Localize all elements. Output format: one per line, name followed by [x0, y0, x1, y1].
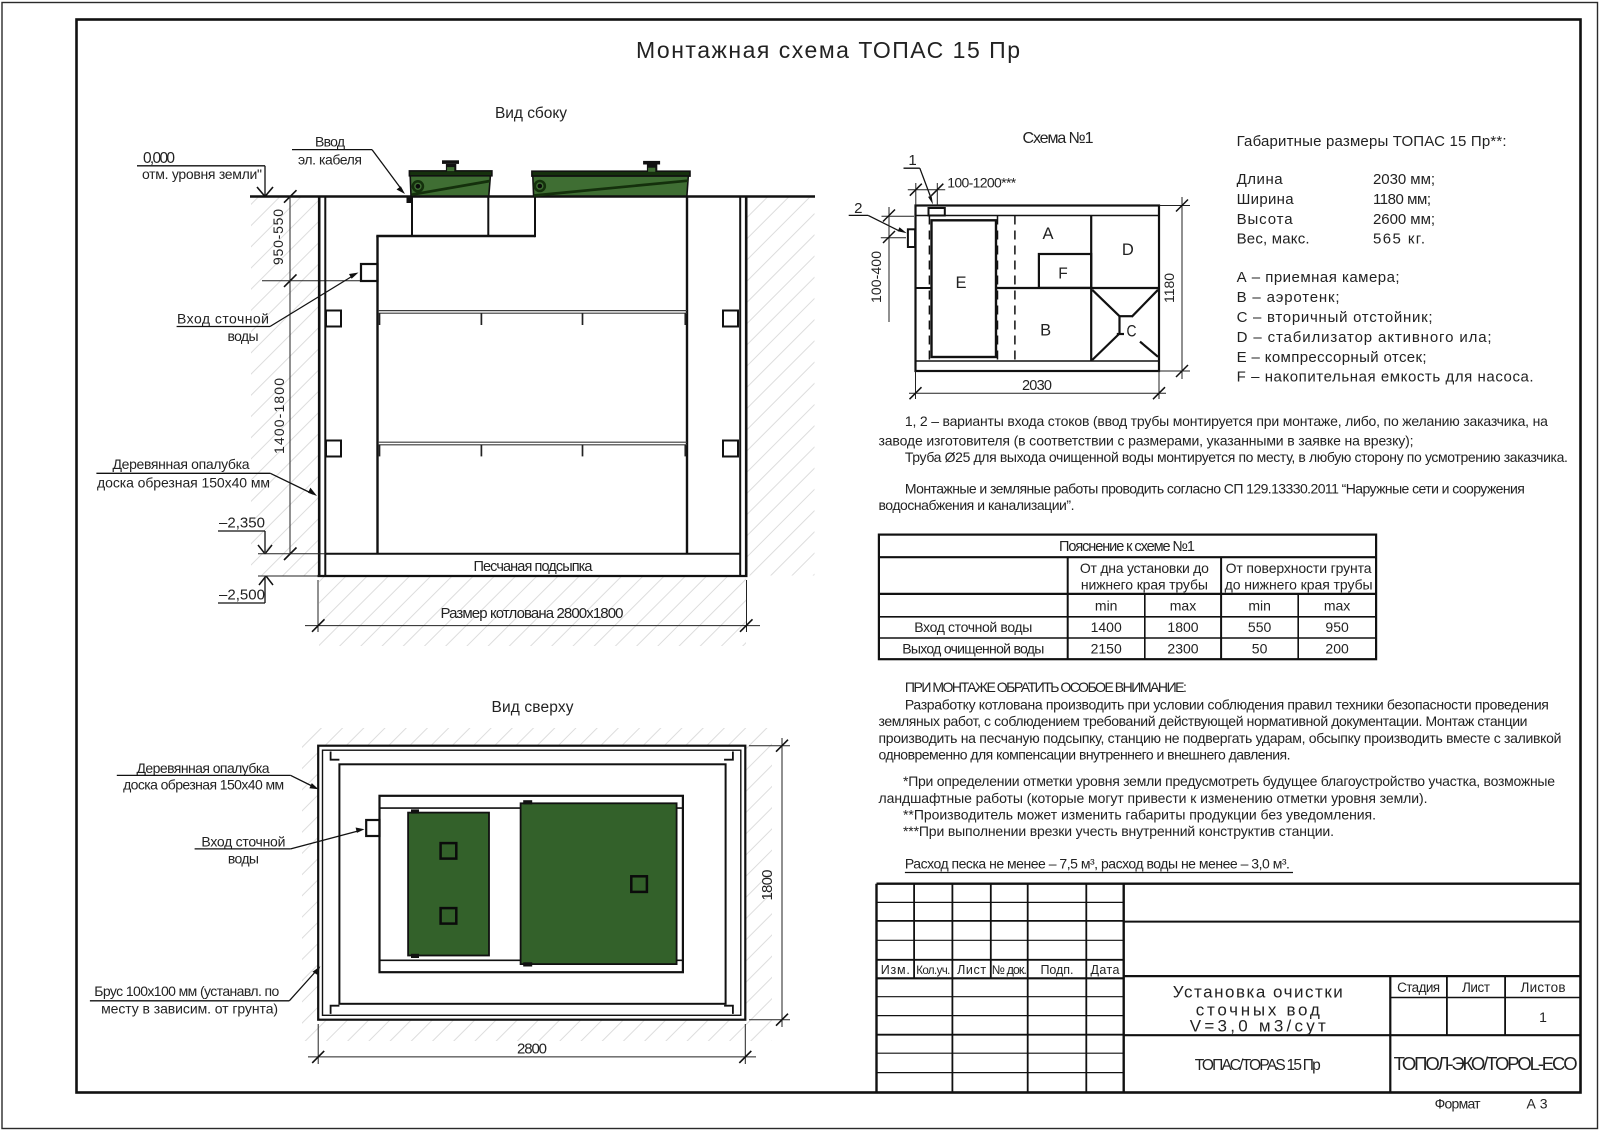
svg-text:Разработку котлована производи: Разработку котлована производить при усл…	[905, 697, 1549, 713]
svg-text:Формат: Формат	[1435, 1096, 1482, 1112]
svg-text:Ввод: Ввод	[315, 134, 345, 150]
svg-text:В – аэротенк;: В – аэротенк;	[1237, 289, 1340, 306]
svg-text:–2,500: –2,500	[219, 587, 265, 604]
svg-text:Деревянная опалубка: Деревянная опалубка	[113, 456, 250, 472]
svg-text:F: F	[1058, 266, 1067, 283]
svg-text:земляных работ, с соблюдением: земляных работ, с соблюдением требований…	[879, 713, 1528, 729]
svg-text:2800: 2800	[517, 1041, 547, 1058]
svg-text:1180: 1180	[1161, 273, 1177, 303]
svg-text:100-1200***: 100-1200***	[947, 175, 1017, 191]
svg-text:Лист: Лист	[957, 963, 986, 977]
svg-text:А – приемная камера;: А – приемная камера;	[1237, 269, 1400, 286]
svg-text:отм. уровня земли": отм. уровня земли"	[142, 166, 262, 182]
svg-text:*При определении отметки уровн: *При определении отметки уровня земли пр…	[903, 773, 1555, 789]
svg-text:B: B	[1040, 322, 1051, 340]
svg-text:Песчаная подсыпка: Песчаная подсыпка	[474, 559, 594, 575]
svg-text:Размер котлована 2800х1800: Размер котлована 2800х1800	[441, 605, 624, 622]
svg-text:доска обрезная 150х40 мм: доска обрезная 150х40 мм	[97, 475, 270, 491]
svg-text:ТОПОЛ-ЭКО/TOPOL-ECO: ТОПОЛ-ЭКО/TOPOL-ECO	[1394, 1053, 1578, 1074]
svg-text:до нижнего края трубы: до нижнего края трубы	[1225, 577, 1373, 593]
svg-text:1800: 1800	[759, 870, 776, 901]
svg-text:Вход сточной: Вход сточной	[201, 834, 285, 850]
svg-text:Установка очистки: Установка очистки	[1173, 983, 1343, 1002]
svg-text:1: 1	[908, 152, 916, 169]
svg-text:Листов: Листов	[1521, 980, 1566, 995]
svg-text:Деревянная опалубка: Деревянная опалубка	[137, 760, 270, 776]
svg-text:2030: 2030	[1022, 378, 1052, 394]
svg-text:1800: 1800	[1167, 619, 1198, 635]
svg-text:565 кг.: 565 кг.	[1373, 231, 1425, 248]
svg-text:2600 мм;: 2600 мм;	[1373, 211, 1435, 228]
svg-text:Подп.: Подп.	[1041, 963, 1074, 977]
svg-text:Дата: Дата	[1091, 963, 1120, 977]
svg-text:Длина: Длина	[1237, 171, 1284, 188]
svg-text:2150: 2150	[1091, 641, 1122, 657]
svg-text:1, 2 – варианты входа стоков: 1, 2 – варианты входа стоков (ввод трубы…	[905, 413, 1548, 429]
svg-text:№ док.: № док.	[992, 963, 1027, 977]
svg-text:E: E	[955, 274, 966, 292]
svg-text:эл. кабеля: эл. кабеля	[298, 152, 362, 168]
svg-text:max: max	[1170, 598, 1196, 614]
svg-text:50: 50	[1252, 641, 1268, 657]
svg-text:Высота: Высота	[1237, 211, 1294, 228]
svg-text:воды: воды	[228, 851, 259, 867]
svg-text:2: 2	[854, 200, 862, 217]
svg-text:Расход песка не менее – 7,5 м³: Расход песка не менее – 7,5 м³, расход в…	[905, 856, 1290, 872]
svg-text:Вход сточной: Вход сточной	[177, 311, 269, 327]
svg-text:Пояснение к схеме №1: Пояснение к схеме №1	[1059, 539, 1195, 555]
svg-text:Стадия: Стадия	[1397, 980, 1440, 995]
svg-text:1400: 1400	[1091, 619, 1122, 635]
svg-text:нижнего края трубы: нижнего края трубы	[1081, 577, 1208, 593]
svg-text:Вид сбоку: Вид сбоку	[495, 105, 567, 122]
svg-text:От дна установки до: От дна установки до	[1080, 560, 1209, 576]
svg-text:Выход очищенной воды: Выход очищенной воды	[902, 641, 1044, 657]
svg-text:**Производитель может изменить: **Производитель может изменить габариты …	[903, 807, 1376, 823]
svg-text:Вес, макс.: Вес, макс.	[1237, 231, 1310, 248]
svg-text:производить на песчаную подсып: производить на песчаную подсыпку, станци…	[879, 730, 1562, 746]
svg-text:От поверхности грунта: От поверхности грунта	[1226, 560, 1372, 576]
svg-text:950-550: 950-550	[270, 209, 286, 265]
svg-text:max: max	[1324, 598, 1350, 614]
svg-text:–2,350: –2,350	[219, 515, 265, 532]
svg-text:Монтажные и земляные работы пр: Монтажные и земляные работы проводить со…	[905, 481, 1525, 497]
svg-text:месту в зависим. от грунта): месту в зависим. от грунта)	[101, 1001, 278, 1017]
svg-text:С – вторичный отстойник;: С – вторичный отстойник;	[1237, 309, 1433, 326]
svg-text:***При выполнении врезки учест: ***При выполнении врезки учесть внутренн…	[903, 823, 1334, 839]
svg-text:одновременно для компенсации в: одновременно для компенсации внутреннего…	[879, 747, 1291, 763]
svg-text:Габаритные размеры ТОПАС 15 Пр: Габаритные размеры ТОПАС 15 Пр**:	[1237, 133, 1507, 150]
svg-text:D – стабилизатор активного ила: D – стабилизатор активного ила;	[1237, 329, 1492, 346]
svg-text:1: 1	[1539, 1009, 1547, 1025]
svg-text:1180 мм;: 1180 мм;	[1373, 191, 1431, 208]
svg-text:ТОПАС/TOPAS 15 Пр: ТОПАС/TOPAS 15 Пр	[1195, 1057, 1321, 1074]
svg-text:A: A	[1042, 225, 1053, 243]
svg-text:2030 мм;: 2030 мм;	[1373, 171, 1435, 188]
svg-text:C: C	[1127, 321, 1137, 340]
svg-text:Лист: Лист	[1462, 980, 1490, 995]
svg-text:2300: 2300	[1167, 641, 1198, 657]
svg-text:Изм.: Изм.	[881, 963, 910, 977]
svg-text:F – накопительная емкость для: F – накопительная емкость для насоса.	[1237, 369, 1534, 386]
svg-text:0,000: 0,000	[143, 150, 175, 167]
svg-text:min: min	[1095, 598, 1118, 614]
svg-text:Вход сточной воды: Вход сточной воды	[914, 619, 1032, 635]
svg-text:ПРИ МОНТАЖЕ ОБРАТИТЬ ОСОБОЕ ВН: ПРИ МОНТАЖЕ ОБРАТИТЬ ОСОБОЕ ВНИМАНИЕ:	[905, 679, 1187, 695]
svg-text:100-400: 100-400	[868, 251, 884, 303]
svg-text:D: D	[1122, 241, 1134, 259]
svg-text:Вид сверху: Вид сверху	[492, 699, 574, 716]
svg-text:min: min	[1248, 598, 1271, 614]
svg-text:Ширина: Ширина	[1237, 191, 1295, 208]
svg-text:200: 200	[1325, 641, 1349, 657]
svg-text:550: 550	[1248, 619, 1272, 635]
svg-text:E – компрессорный отсек;: E – компрессорный отсек;	[1237, 349, 1427, 366]
svg-text:Схема №1: Схема №1	[1023, 130, 1094, 147]
svg-text:950: 950	[1325, 619, 1349, 635]
svg-text:ландшафтные работы (которые мо: ландшафтные работы (которые могут привес…	[879, 790, 1428, 806]
svg-text:Брус 100х100 мм (устанавл. по: Брус 100х100 мм (устанавл. по	[94, 983, 279, 999]
svg-text:доска обрезная 150х40 мм: доска обрезная 150х40 мм	[123, 777, 284, 793]
svg-text:Кол.уч.: Кол.уч.	[916, 965, 950, 977]
svg-text:заводе изготовителя (в соответ: заводе изготовителя (в соответствии с ра…	[879, 433, 1414, 449]
svg-text:водоснабжения и канализации”.: водоснабжения и канализации”.	[879, 497, 1075, 513]
svg-text:воды: воды	[228, 328, 259, 344]
svg-text:Монтажная схема ТОПАС 15 Пр: Монтажная схема ТОПАС 15 Пр	[636, 37, 1020, 63]
svg-text:1400-1800: 1400-1800	[271, 378, 287, 454]
svg-text:Труба Ø25 для выхода очищенной: Труба Ø25 для выхода очищенной воды монт…	[905, 449, 1568, 465]
